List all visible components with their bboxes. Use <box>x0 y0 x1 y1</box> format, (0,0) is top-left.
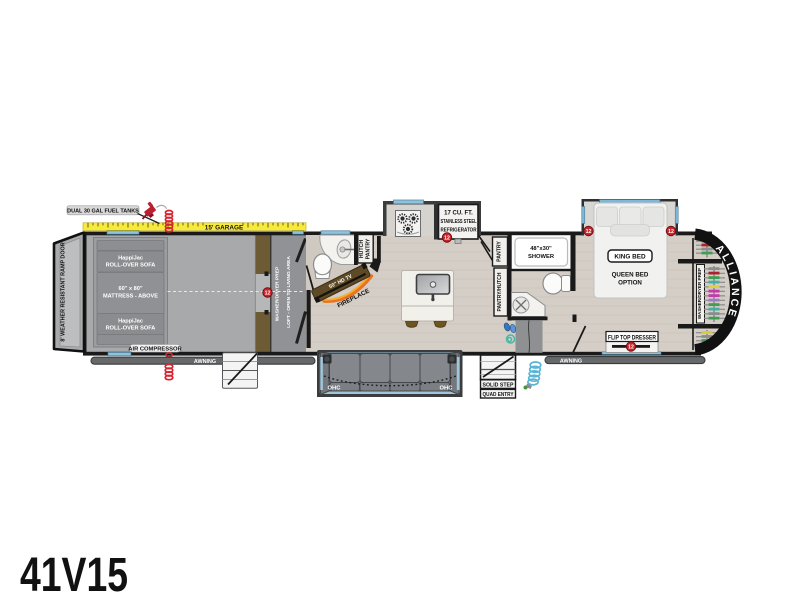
svg-text:12: 12 <box>586 229 592 235</box>
svg-text:OHC: OHC <box>440 386 454 392</box>
svg-text:48"x30": 48"x30" <box>530 246 552 252</box>
svg-text:ROLL-OVER SOFA: ROLL-OVER SOFA <box>106 326 156 332</box>
svg-text:PANTRY/HUTCH: PANTRY/HUTCH <box>497 272 503 311</box>
svg-text:12: 12 <box>668 229 674 235</box>
svg-text:MATTRESS - ABOVE: MATTRESS - ABOVE <box>103 294 158 300</box>
svg-text:QUAD ENTRY: QUAD ENTRY <box>483 392 514 398</box>
svg-text:OPTION: OPTION <box>618 280 642 287</box>
svg-text:17 CU. FT.: 17 CU. FT. <box>444 211 473 217</box>
svg-text:8' WEATHER RESISTANT RAMP DOOR: 8' WEATHER RESISTANT RAMP DOOR <box>61 242 67 341</box>
svg-text:FLIP TOP DRESSER: FLIP TOP DRESSER <box>608 336 657 342</box>
svg-text:DUAL 30 GAL FUEL TANKS: DUAL 30 GAL FUEL TANKS <box>67 209 139 215</box>
svg-text:15' GARAGE: 15' GARAGE <box>205 224 244 231</box>
svg-text:PANTRY: PANTRY <box>497 241 503 262</box>
svg-text:STAINLESS STEEL: STAINLESS STEEL <box>441 219 477 225</box>
svg-text:WASHER/DRYER PREP: WASHER/DRYER PREP <box>275 266 281 321</box>
svg-text:HappiJac: HappiJac <box>118 256 143 262</box>
svg-text:OHC: OHC <box>328 386 342 392</box>
svg-text:60" x 80": 60" x 80" <box>119 286 143 292</box>
svg-text:AWNING: AWNING <box>194 359 216 365</box>
svg-text:AWNING: AWNING <box>560 358 582 364</box>
svg-text:SOLID STEP: SOLID STEP <box>483 383 514 389</box>
svg-text:41V15: 41V15 <box>20 549 128 600</box>
svg-text:WASHER/DRYER PREP: WASHER/DRYER PREP <box>697 268 702 319</box>
svg-text:HUTCH: HUTCH <box>359 240 365 258</box>
svg-text:PANTRY: PANTRY <box>366 238 372 259</box>
svg-text:KING BED: KING BED <box>614 254 646 261</box>
svg-text:LOFT - OPEN TO LIVING AREA: LOFT - OPEN TO LIVING AREA <box>286 256 292 328</box>
svg-text:HappiJac: HappiJac <box>118 319 143 325</box>
svg-text:12: 12 <box>444 235 450 241</box>
svg-text:QUEEN BED: QUEEN BED <box>612 272 649 279</box>
svg-text:AIR COMPRESSOR: AIR COMPRESSOR <box>128 346 182 352</box>
svg-text:SHOWER: SHOWER <box>528 254 555 260</box>
svg-text:ROLL-OVER SOFA: ROLL-OVER SOFA <box>106 263 156 269</box>
svg-text:12: 12 <box>628 344 634 350</box>
svg-text:12: 12 <box>265 290 271 296</box>
